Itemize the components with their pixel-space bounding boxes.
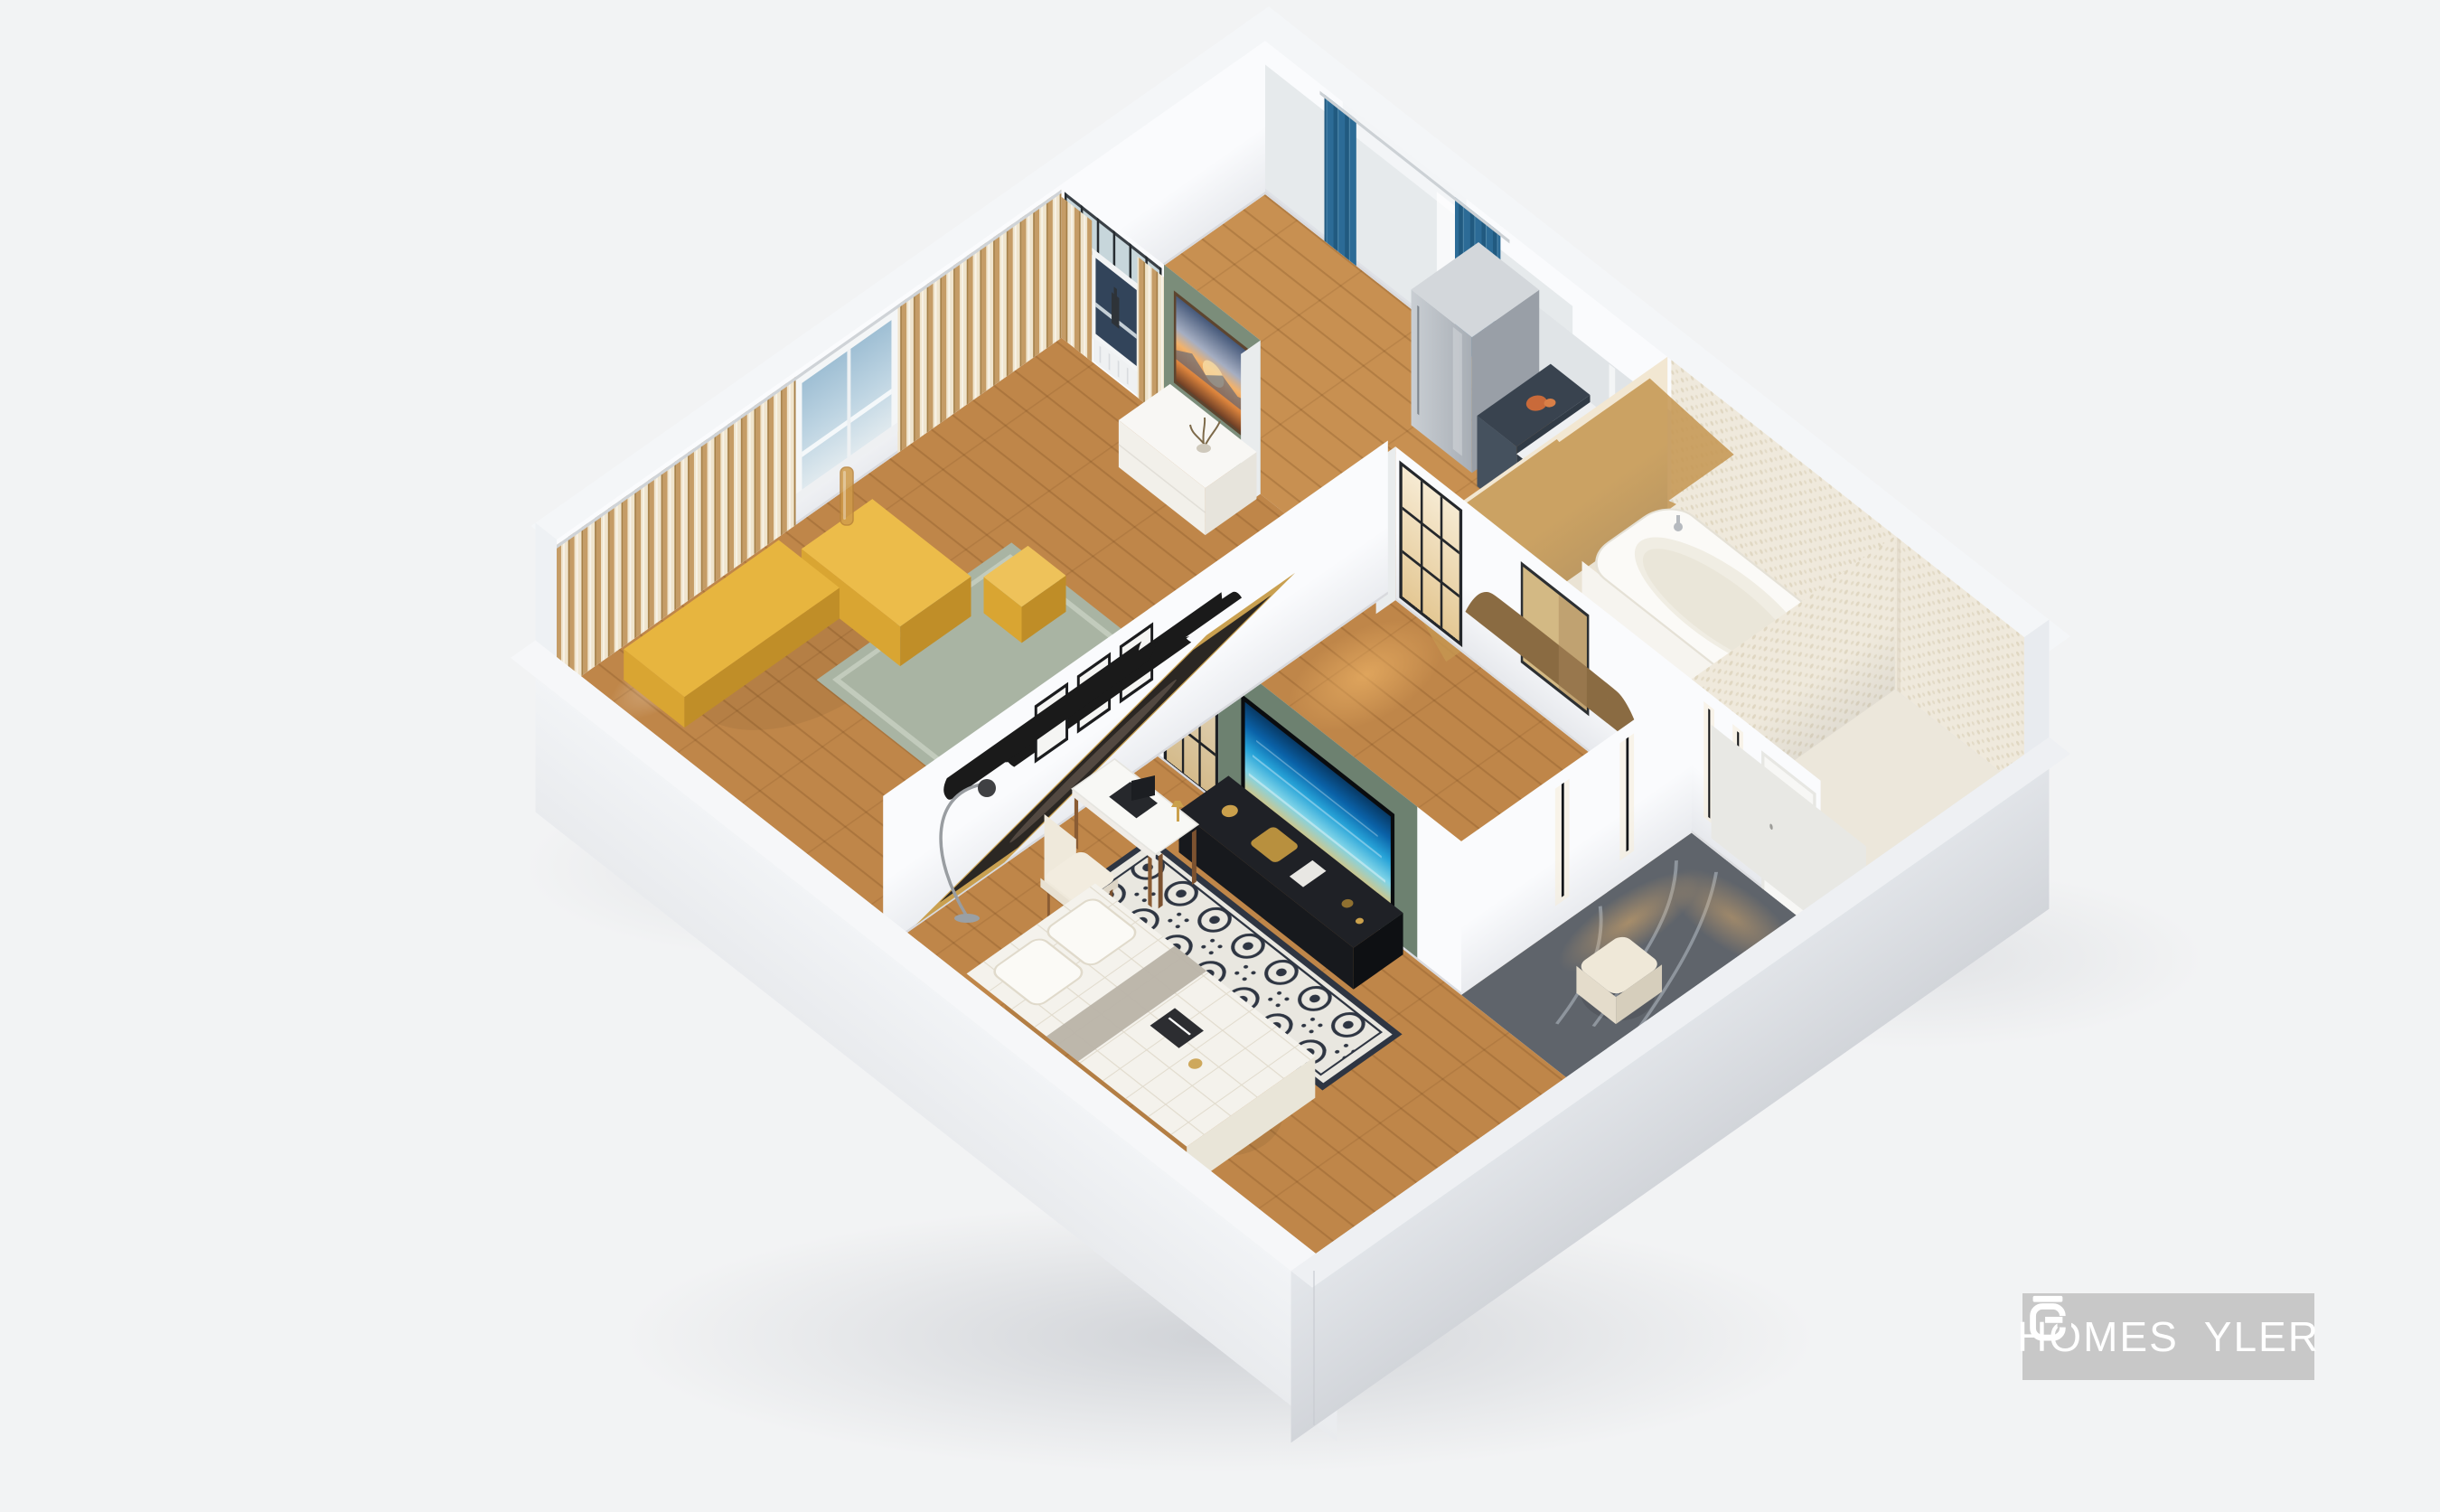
watermark-text-right: YLER — [2204, 1316, 2320, 1357]
amber-floor-vase — [840, 467, 853, 525]
homestyler-watermark: HOMES YLER — [2022, 1293, 2314, 1380]
homestyler-logo-icon — [2022, 1293, 2071, 1342]
apartment-3d-render — [0, 0, 2440, 1512]
drape-wrap-left — [1062, 197, 1093, 362]
floorplan-render-canvas: HOMES YLER — [0, 0, 2440, 1512]
blue-curtain-left — [1325, 94, 1356, 266]
